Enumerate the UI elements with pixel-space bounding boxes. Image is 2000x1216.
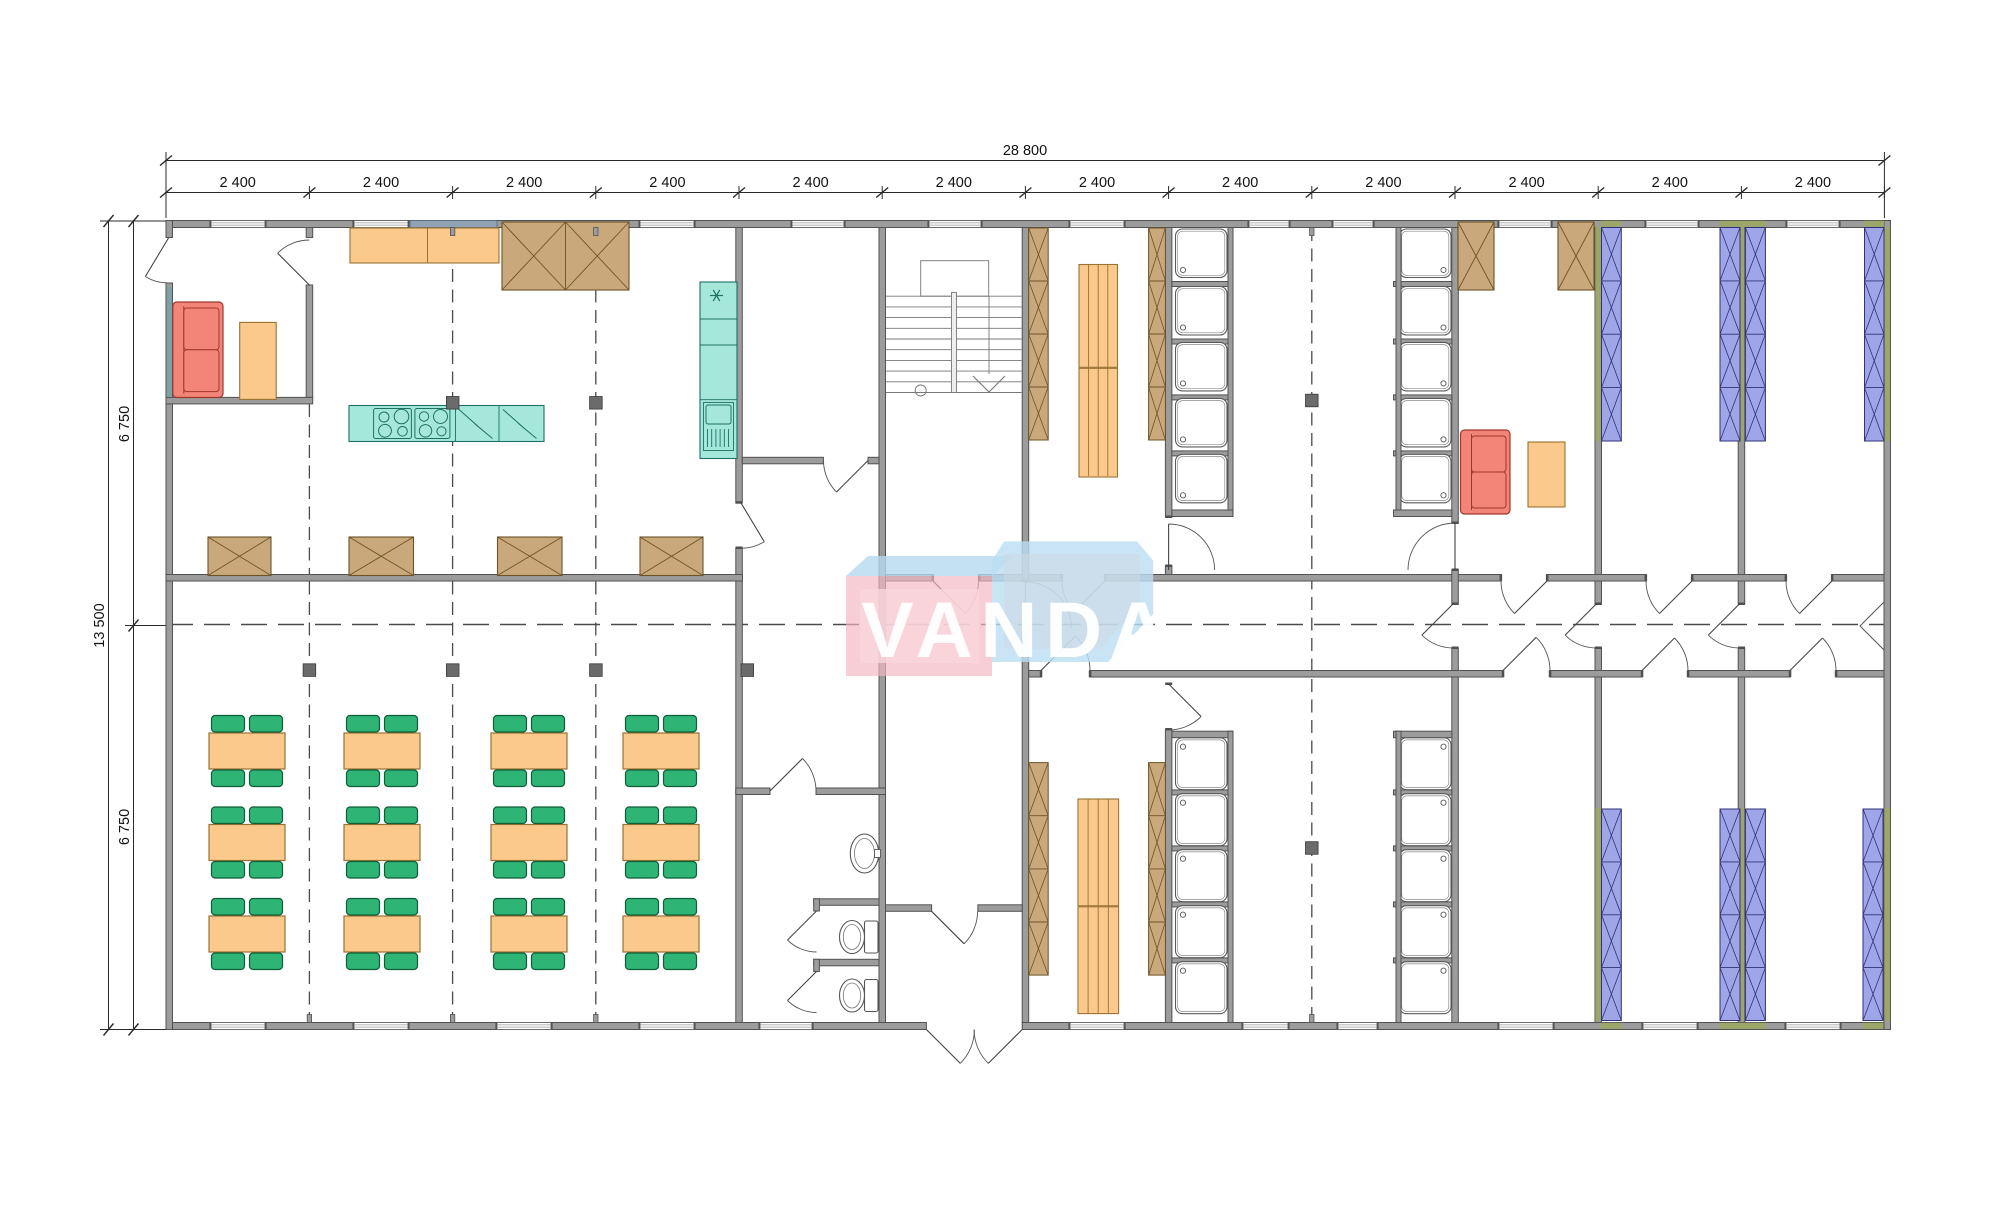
svg-text:2 400: 2 400 [1508, 175, 1544, 191]
svg-text:2 400: 2 400 [649, 175, 685, 191]
svg-text:13 500: 13 500 [92, 603, 108, 647]
svg-text:2 400: 2 400 [363, 175, 399, 191]
svg-text:VANDA: VANDA [861, 585, 1167, 674]
svg-text:2 400: 2 400 [506, 175, 542, 191]
svg-text:6 750: 6 750 [117, 809, 133, 845]
svg-text:2 400: 2 400 [936, 175, 972, 191]
svg-text:6 750: 6 750 [117, 406, 133, 442]
svg-text:2 400: 2 400 [1365, 175, 1401, 191]
svg-text:2 400: 2 400 [1222, 175, 1258, 191]
svg-text:2 400: 2 400 [1795, 175, 1831, 191]
svg-text:2 400: 2 400 [220, 175, 256, 191]
svg-text:2 400: 2 400 [1652, 175, 1688, 191]
svg-text:2 400: 2 400 [1079, 175, 1115, 191]
svg-text:28 800: 28 800 [1003, 143, 1047, 159]
svg-text:2 400: 2 400 [792, 175, 828, 191]
